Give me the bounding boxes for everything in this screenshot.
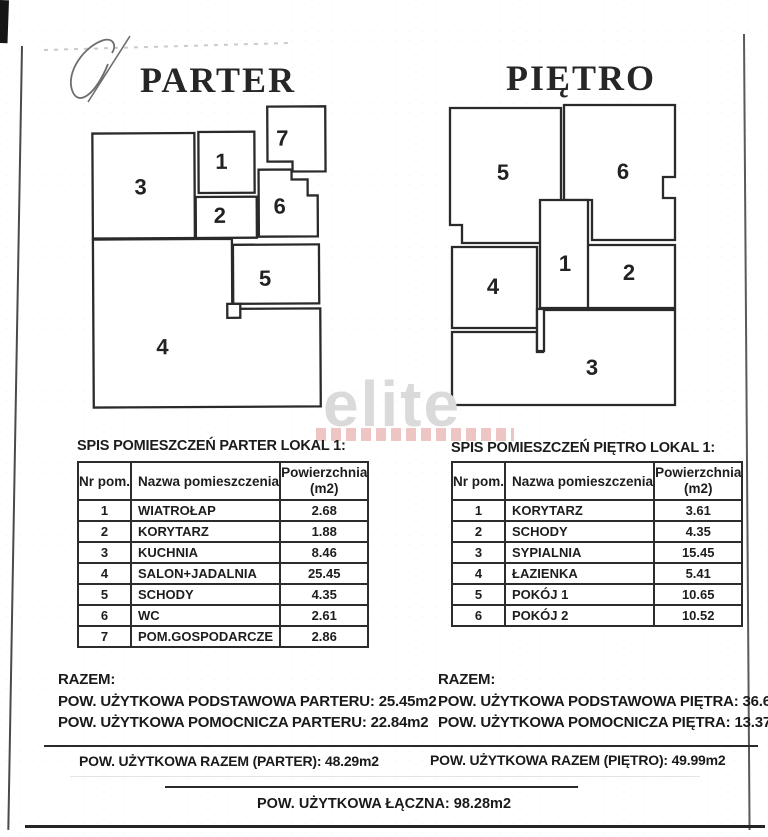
parter-rooms-table: Nr pom. Nazwa pomieszczenia Powierzchnia… bbox=[77, 461, 369, 648]
header-nazwa: Nazwa pomieszczenia bbox=[505, 462, 654, 500]
parter-total: POW. UŻYTKOWA RAZEM (PARTER): 48.29m2 bbox=[79, 753, 379, 769]
header-powierzchnia-line1: Powierzchnia bbox=[281, 465, 367, 481]
pietro-table-title: SPIS POMIESZCZEŃ PIĘTRO LOKAL 1: bbox=[451, 440, 715, 456]
room-area: 2.68 bbox=[280, 500, 368, 521]
table-row: 6POKÓJ 210.52 bbox=[452, 605, 742, 626]
room-name: POM.GOSPODARCZE bbox=[131, 626, 280, 647]
pietro-room-5-label: 5 bbox=[497, 160, 509, 185]
room-area: 4.35 bbox=[280, 584, 368, 605]
parter-room-3-label: 3 bbox=[134, 174, 146, 199]
room-nr: 4 bbox=[452, 563, 505, 584]
table-row: 6WC2.61 bbox=[78, 605, 368, 626]
room-area: 10.52 bbox=[654, 605, 742, 626]
table-row: 5POKÓJ 110.65 bbox=[452, 584, 742, 605]
table-row: 7POM.GOSPODARCZE2.86 bbox=[78, 626, 368, 647]
header-powierzchnia-line2: (m2) bbox=[281, 481, 367, 497]
pietro-room-4-label: 4 bbox=[487, 274, 500, 299]
room-nr: 7 bbox=[78, 626, 131, 647]
table-row: 3KUCHNIA8.46 bbox=[78, 542, 368, 563]
scanned-floorplan-document: PARTER PIĘTRO 1 2 3 4 5 6 7 1 2 3 4 5 6 … bbox=[0, 0, 768, 837]
parter-summary-line1: POW. UŻYTKOWA PODSTAWOWA PARTERU: 25.45m… bbox=[58, 691, 437, 713]
table-row: 1KORYTARZ3.61 bbox=[452, 500, 742, 521]
parter-wall-notch bbox=[227, 304, 240, 318]
room-nr: 5 bbox=[452, 584, 505, 605]
parter-room-1-label: 1 bbox=[215, 149, 227, 174]
room-nr: 1 bbox=[78, 500, 131, 521]
parter-title: PARTER bbox=[140, 62, 296, 98]
room-name: SCHODY bbox=[505, 521, 654, 542]
room-area: 5.41 bbox=[654, 563, 742, 584]
scan-corner-artifact bbox=[0, 0, 9, 43]
pietro-title: PIĘTRO bbox=[506, 60, 656, 96]
pietro-summary: RAZEM: POW. UŻYTKOWA PODSTAWOWA PIĘTRA: … bbox=[438, 669, 768, 734]
header-powierzchnia-line1: Powierzchnia bbox=[655, 465, 741, 481]
parter-room-2-outline bbox=[196, 197, 257, 238]
room-nr: 2 bbox=[78, 521, 131, 542]
room-nr: 3 bbox=[78, 542, 131, 563]
page-bottom-rule bbox=[25, 825, 765, 828]
parter-razem-label: RAZEM: bbox=[58, 669, 437, 691]
parter-room-4-label: 4 bbox=[156, 334, 169, 359]
table-header-row: Nr pom. Nazwa pomieszczenia Powierzchnia… bbox=[452, 462, 742, 500]
room-name: KORYTARZ bbox=[505, 500, 654, 521]
totals-mid-rule bbox=[165, 786, 578, 788]
page-left-border bbox=[7, 46, 23, 830]
pietro-floor-plan: 1 2 3 4 5 6 bbox=[430, 100, 690, 420]
scan-faint-line bbox=[70, 776, 700, 777]
table-row: 3SYPIALNIA15.45 bbox=[452, 542, 742, 563]
room-nr: 5 bbox=[78, 584, 131, 605]
room-area: 2.86 bbox=[280, 626, 368, 647]
parter-floor-plan: 1 2 3 4 5 6 7 bbox=[54, 97, 346, 419]
parter-room-7-label: 7 bbox=[276, 126, 288, 151]
room-nr: 6 bbox=[452, 605, 505, 626]
room-nr: 6 bbox=[78, 605, 131, 626]
parter-summary: RAZEM: POW. UŻYTKOWA PODSTAWOWA PARTERU:… bbox=[58, 669, 437, 734]
grand-total: POW. UŻYTKOWA ŁĄCZNA: 98.28m2 bbox=[0, 796, 768, 812]
table-row: 5SCHODY4.35 bbox=[78, 584, 368, 605]
room-area: 4.35 bbox=[654, 521, 742, 542]
room-area: 2.61 bbox=[280, 605, 368, 626]
pietro-room-1-label: 1 bbox=[559, 251, 571, 276]
room-area: 25.45 bbox=[280, 563, 368, 584]
room-nr: 3 bbox=[452, 542, 505, 563]
pietro-summary-line2: POW. UŻYTKOWA POMOCNICZA PIĘTRA: 13.37m2 bbox=[438, 712, 768, 734]
pietro-razem-label: RAZEM: bbox=[438, 669, 768, 691]
table-row: 1WIATROŁAP2.68 bbox=[78, 500, 368, 521]
room-nr: 4 bbox=[78, 563, 131, 584]
table-row: 2SCHODY4.35 bbox=[452, 521, 742, 542]
pietro-total: POW. UŻYTKOWA RAZEM (PIĘTRO): 49.99m2 bbox=[430, 752, 725, 768]
parter-room-5-label: 5 bbox=[259, 266, 271, 291]
room-name: KUCHNIA bbox=[131, 542, 280, 563]
room-name: ŁAZIENKA bbox=[505, 563, 654, 584]
parter-room-6-outline bbox=[259, 169, 318, 236]
room-name: POKÓJ 2 bbox=[505, 605, 654, 626]
parter-room-6-label: 6 bbox=[274, 194, 286, 219]
pietro-room-2-label: 2 bbox=[623, 260, 635, 285]
header-nazwa: Nazwa pomieszczenia bbox=[131, 462, 280, 500]
header-powierzchnia: Powierzchnia (m2) bbox=[654, 462, 742, 500]
room-name: SYPIALNIA bbox=[505, 542, 654, 563]
table-row: 2KORYTARZ1.88 bbox=[78, 521, 368, 542]
pietro-room-6-label: 6 bbox=[617, 159, 629, 184]
pietro-corridor-outline bbox=[537, 309, 544, 351]
room-area: 10.65 bbox=[654, 584, 742, 605]
parter-table-title: SPIS POMIESZCZEŃ PARTER LOKAL 1: bbox=[77, 438, 346, 454]
pietro-summary-line1: POW. UŻYTKOWA PODSTAWOWA PIĘTRA: 36.62m2 bbox=[438, 691, 768, 713]
header-nr-pom: Nr pom. bbox=[452, 462, 505, 500]
parter-summary-line2: POW. UŻYTKOWA POMOCNICZA PARTERU: 22.84m… bbox=[58, 712, 437, 734]
elite-watermark: elite bbox=[323, 372, 461, 436]
totals-top-rule bbox=[44, 745, 758, 747]
table-header-row: Nr pom. Nazwa pomieszczenia Powierzchnia… bbox=[78, 462, 368, 500]
table-row: 4SALON+JADALNIA25.45 bbox=[78, 563, 368, 584]
table-row: 4ŁAZIENKA5.41 bbox=[452, 563, 742, 584]
pietro-rooms-table: Nr pom. Nazwa pomieszczenia Powierzchnia… bbox=[451, 461, 743, 627]
room-name: WC bbox=[131, 605, 280, 626]
room-area: 8.46 bbox=[280, 542, 368, 563]
header-powierzchnia-line2: (m2) bbox=[655, 481, 741, 497]
room-area: 1.88 bbox=[280, 521, 368, 542]
room-name: SALON+JADALNIA bbox=[131, 563, 280, 584]
room-area: 3.61 bbox=[654, 500, 742, 521]
room-name: POKÓJ 1 bbox=[505, 584, 654, 605]
parter-room-5-outline bbox=[233, 244, 319, 303]
header-powierzchnia: Powierzchnia (m2) bbox=[280, 462, 368, 500]
room-nr: 2 bbox=[452, 521, 505, 542]
parter-room-2-label: 2 bbox=[214, 203, 226, 228]
room-nr: 1 bbox=[452, 500, 505, 521]
room-name: SCHODY bbox=[131, 584, 280, 605]
pietro-room-3-label: 3 bbox=[586, 355, 598, 380]
header-nr-pom: Nr pom. bbox=[78, 462, 131, 500]
room-name: KORYTARZ bbox=[131, 521, 280, 542]
room-area: 15.45 bbox=[654, 542, 742, 563]
room-name: WIATROŁAP bbox=[131, 500, 280, 521]
